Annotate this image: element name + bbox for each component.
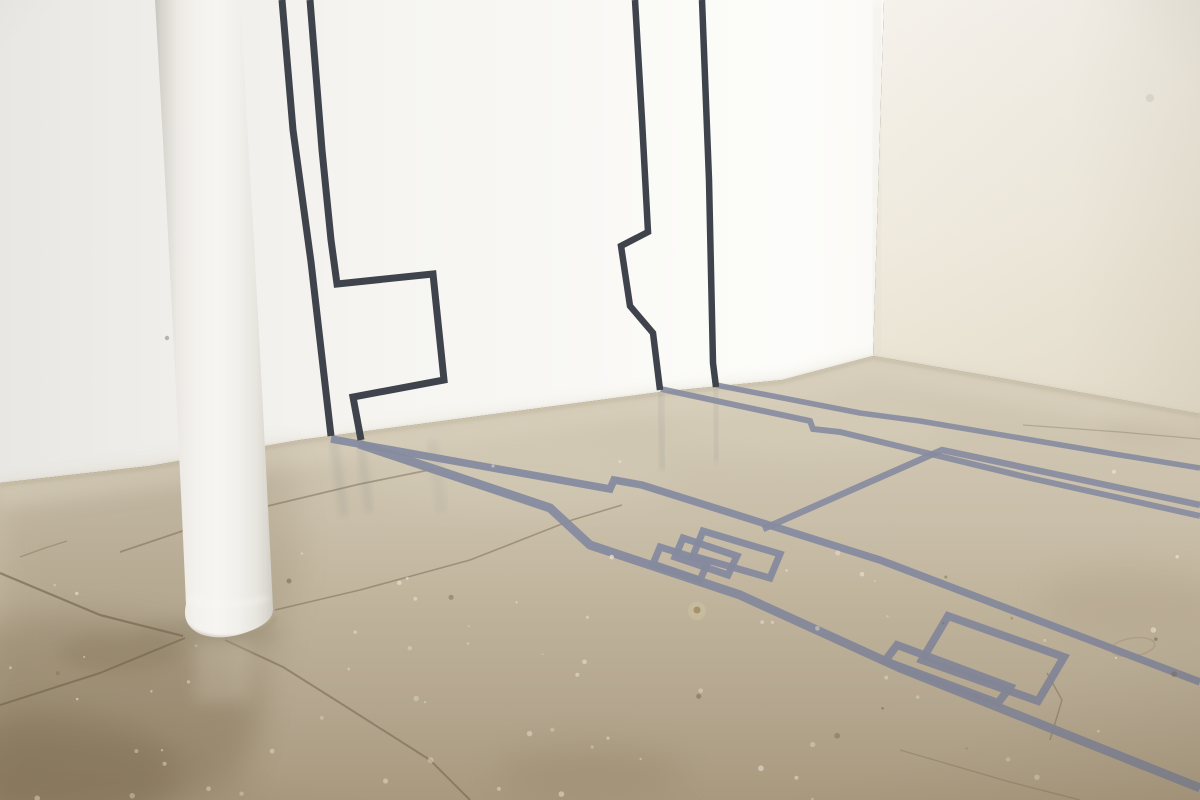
photo-canvas [0,0,1200,800]
vignette [0,0,1200,800]
gallery-photograph [0,0,1200,800]
